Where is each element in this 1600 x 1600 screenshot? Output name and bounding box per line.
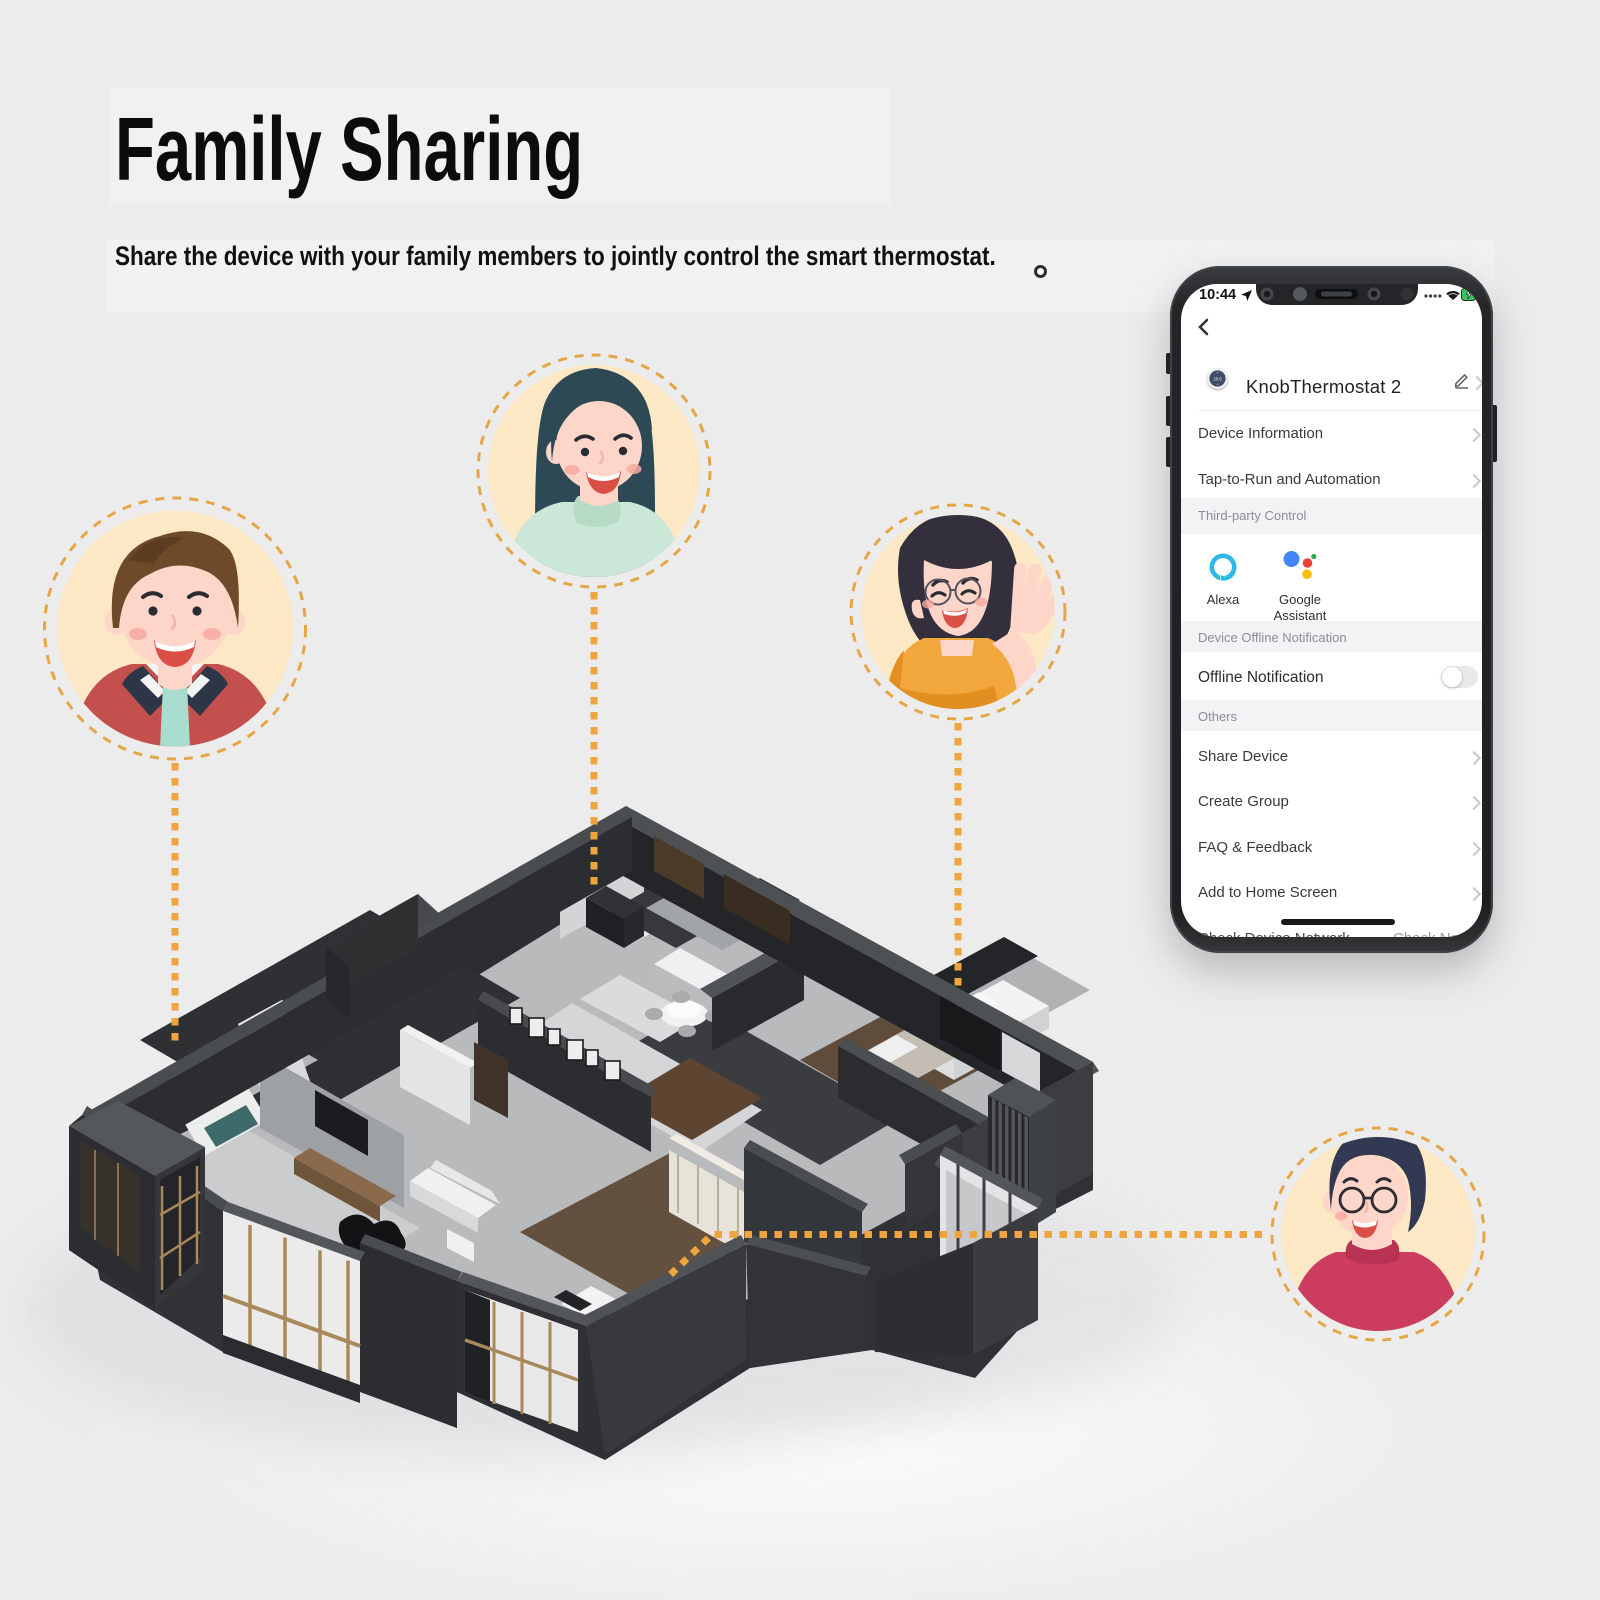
svg-text:20.5: 20.5 (1213, 377, 1222, 382)
